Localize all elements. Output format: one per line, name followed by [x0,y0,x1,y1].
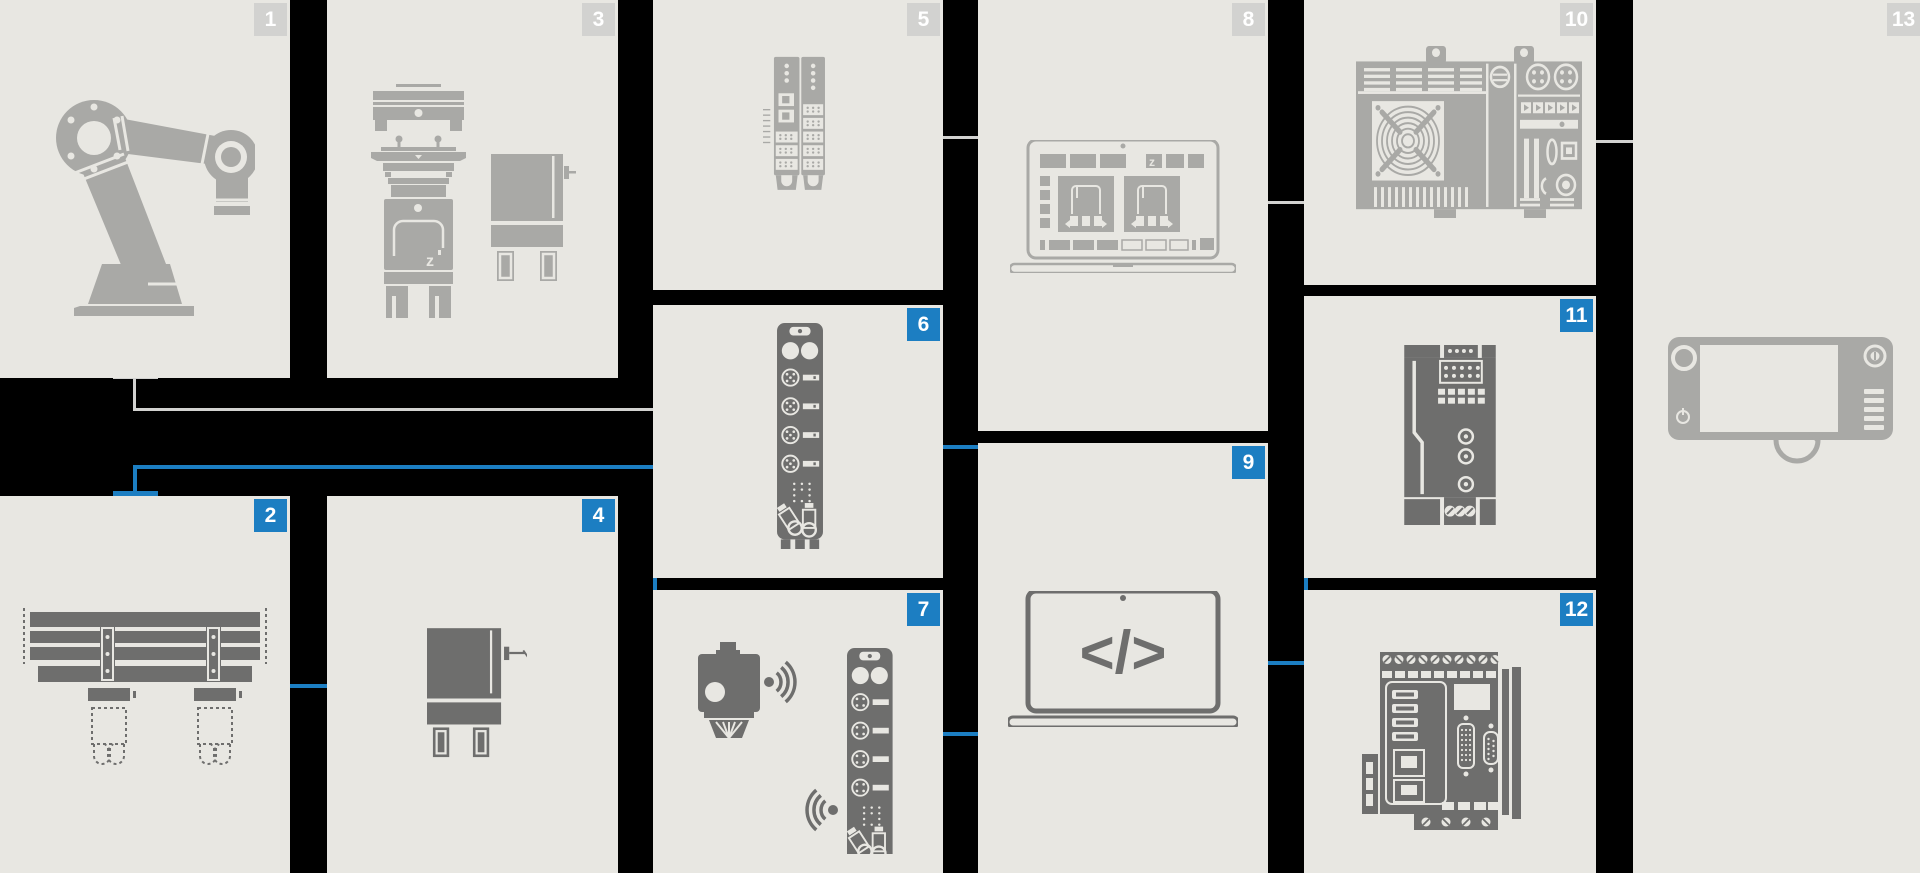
badge-1: 1 [254,3,287,36]
badge-12: 12 [1560,593,1593,626]
connector-9-12-line [1268,661,1305,665]
svg-text:</>: </> [1080,619,1167,686]
connector-2-6-riser [133,469,137,496]
laptop-engineering-software-icon: z [1010,140,1236,273]
connector-10-13-line [1596,140,1635,143]
card-laptop-engineering-software[interactable]: 8 z [978,0,1268,431]
wireless-sensor-io-icon [695,642,895,854]
badge-5: 5 [907,3,940,36]
io-terminal-modules-icon [763,55,825,199]
svg-text:z: z [426,253,434,270]
connector-8-10-line [1268,201,1306,204]
card-wireless-sensor-io[interactable]: 7 [653,590,943,873]
fieldbus-io-block-icon [777,323,823,549]
machines-pair-icon: z [371,84,576,319]
badge-11: 11 [1560,299,1593,332]
machine-cabinet-icon [427,628,527,758]
laptop-code-icon: </> [1008,591,1238,727]
connector-1-6-line [133,408,656,411]
card-handheld-hmi-panel[interactable]: 13 [1633,0,1920,873]
embedded-controller-icon [1362,652,1522,830]
card-industrial-pc[interactable]: 10 [1304,0,1596,285]
connector-7-9-line [943,732,979,736]
badge-4: 4 [582,499,615,532]
connector-1-6-riser [133,378,136,411]
card-robot-arm[interactable]: 1 [0,0,290,378]
gantry-linear-unit-icon [20,604,270,769]
badge-9: 9 [1232,446,1265,479]
component-diagram: 1 [0,0,1920,873]
badge-6: 6 [907,308,940,341]
card-laptop-code[interactable]: 9 </> [978,443,1268,873]
connector-2-6-line [133,465,657,469]
card-machine-cabinet[interactable]: 4 [327,496,618,873]
card-io-terminal-modules[interactable]: 5 [653,0,943,290]
card-embedded-controller[interactable]: 12 [1304,590,1596,873]
card-gantry-linear-unit[interactable]: 2 [0,496,290,873]
badge-3: 3 [582,3,615,36]
badge-13: 13 [1887,3,1920,36]
badge-10: 10 [1560,3,1593,36]
connector-5-8-line [943,136,982,139]
card-machines-pair[interactable]: 3 [327,0,618,378]
badge-8: 8 [1232,3,1265,36]
badge-2: 2 [254,499,287,532]
robot-arm-icon [30,58,255,318]
connector-2-4-line [290,684,328,688]
connector-6-9-line [943,445,979,449]
card-fieldbus-io-block[interactable]: 6 [653,305,943,578]
card-power-supply[interactable]: 11 [1304,296,1596,578]
power-supply-icon [1404,345,1496,525]
badge-7: 7 [907,593,940,626]
handheld-hmi-panel-icon [1668,337,1893,465]
svg-text:z: z [1149,155,1155,169]
industrial-pc-icon [1356,46,1582,218]
